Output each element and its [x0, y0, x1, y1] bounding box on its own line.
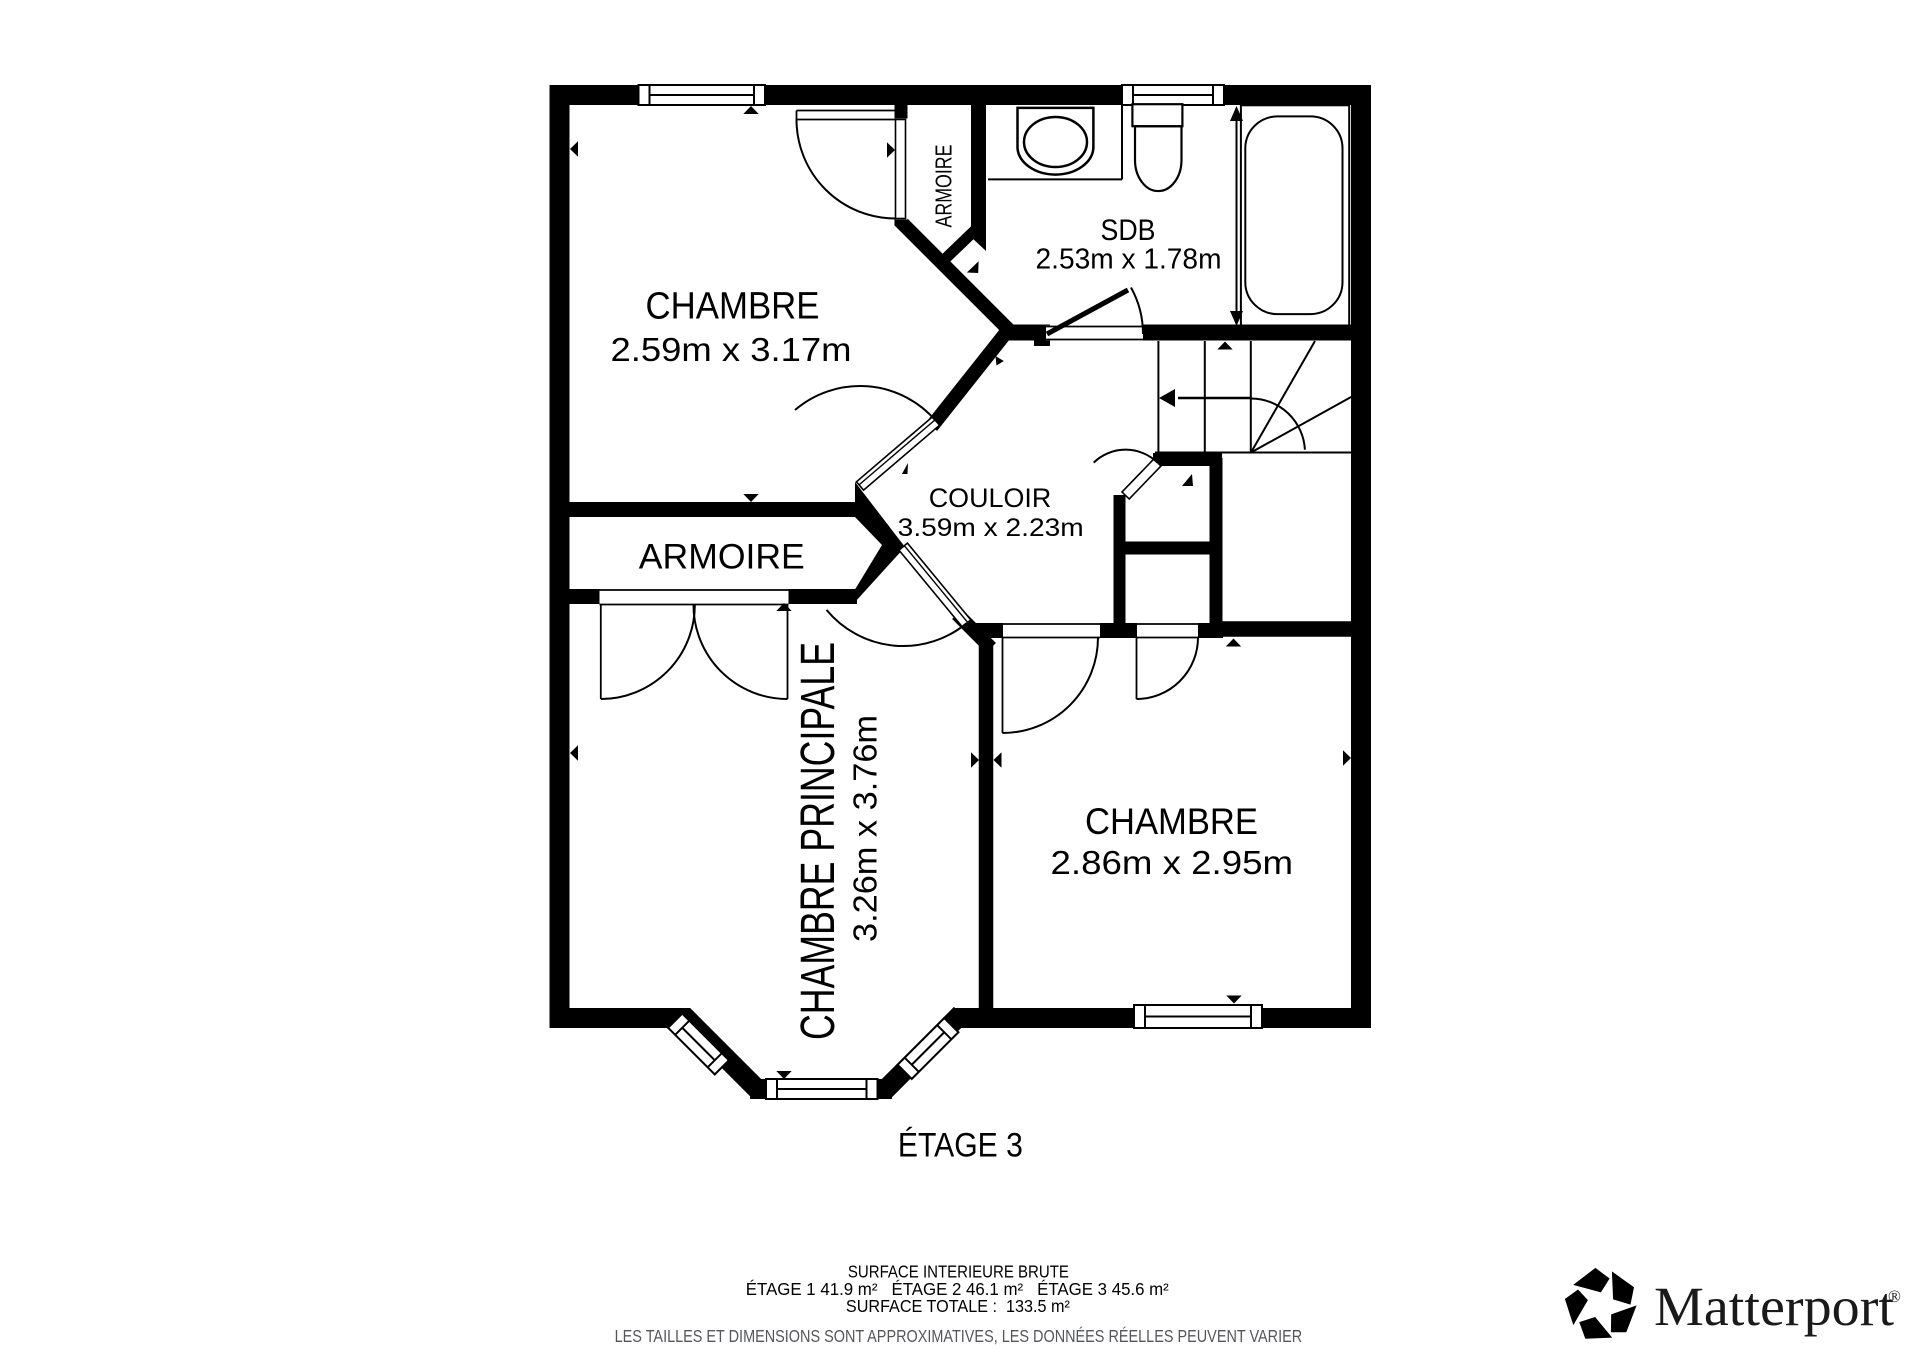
- svg-text:2.86m x 2.95m: 2.86m x 2.95m: [1051, 844, 1294, 881]
- svg-text:LES TAILLES ET DIMENSIONS SONT: LES TAILLES ET DIMENSIONS SONT APPROXIMA…: [615, 1326, 1303, 1346]
- svg-text:3.26m x 3.76m: 3.26m x 3.76m: [848, 715, 885, 942]
- svg-text:CHAMBRE: CHAMBRE: [646, 286, 820, 328]
- svg-text:2.53m x 1.78m: 2.53m x 1.78m: [1036, 244, 1222, 276]
- svg-text:ARMOIRE: ARMOIRE: [930, 145, 956, 228]
- svg-text:CHAMBRE PRINCIPALE: CHAMBRE PRINCIPALE: [792, 642, 845, 1040]
- svg-text:Matterport: Matterport: [1654, 1276, 1894, 1337]
- svg-text:2.59m x 3.17m: 2.59m x 3.17m: [611, 332, 852, 369]
- svg-text:SURFACE TOTALE : 133.5 m²: SURFACE TOTALE : 133.5 m²: [846, 1296, 1070, 1316]
- svg-text:®: ®: [1888, 1287, 1901, 1306]
- svg-text:ARMOIRE: ARMOIRE: [639, 538, 805, 577]
- svg-text:3.59m x 2.23m: 3.59m x 2.23m: [898, 514, 1084, 542]
- svg-text:CHAMBRE: CHAMBRE: [1085, 801, 1258, 842]
- svg-text:ÉTAGE 3: ÉTAGE 3: [898, 1126, 1023, 1165]
- svg-text:SDB: SDB: [1101, 214, 1156, 247]
- svg-text:COULOIR: COULOIR: [929, 483, 1052, 513]
